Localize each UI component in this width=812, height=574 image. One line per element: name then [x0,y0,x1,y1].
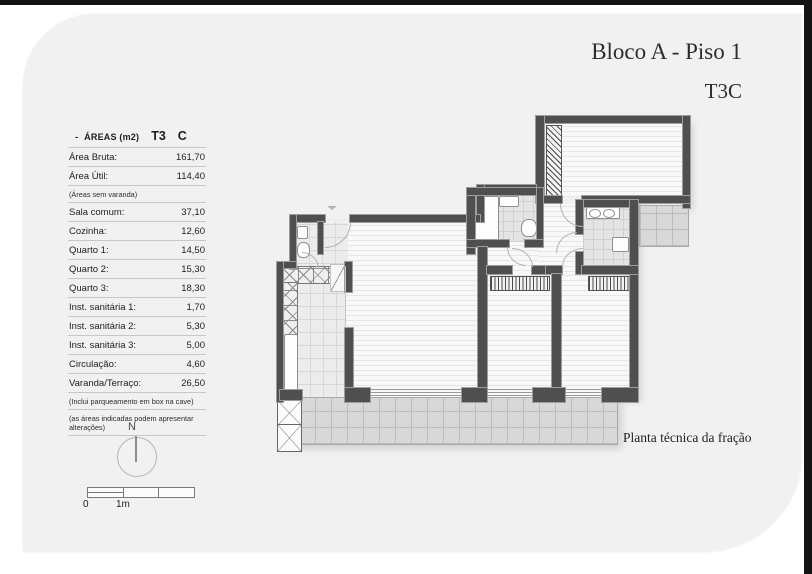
header-type: T3 [151,129,166,143]
scale-divider [158,488,159,497]
row-value: 5,00 [187,340,206,351]
wall-segment [467,188,543,195]
wall-segment [467,240,509,247]
header-fraction: C [178,129,187,143]
table-note: (Áreas sem varanda) [68,186,206,203]
window [370,389,462,397]
plan-title-block: Bloco A - Piso 1 T3C [591,40,742,102]
wall-segment [290,215,296,269]
row-label: Área Útil: [69,171,108,182]
shaft-box [277,424,302,452]
table-row: Inst. sanitária 3: 5,00 [68,336,206,355]
wall-segment [683,116,690,208]
table-row: Quarto 3: 18,30 [68,279,206,298]
block-floor-title: Bloco A - Piso 1 [591,40,742,63]
wall-segment [546,266,562,274]
wall-segment [583,200,630,207]
divider-line [345,266,346,328]
fixture [612,237,629,252]
compass-needle [135,436,137,462]
wall-segment [537,188,543,240]
wall-segment [582,266,638,274]
header-bullet: - [75,132,78,143]
row-label: Quarto 1: [69,245,109,256]
table-row: Inst. sanitária 2: 5,30 [68,317,206,336]
table-row: Circulação: 4,60 [68,355,206,374]
wall-segment [552,274,561,390]
shaft-box [277,400,302,426]
row-label: Circulação: [69,359,117,370]
row-value: 18,30 [181,283,205,294]
wall-segment [318,222,323,254]
row-value: 1,70 [187,302,206,313]
wall-segment [350,215,480,222]
wall-segment [536,116,690,123]
scale-divider [123,488,124,497]
fixture [499,196,519,207]
table-row: Inst. sanitária 1: 1,70 [68,298,206,317]
row-value: 4,60 [187,359,206,370]
row-label: Cozinha: [69,226,107,237]
table-footnote: (as áreas indicadas podem apresentar alt… [68,410,206,436]
wardrobe-hatch [546,125,562,197]
row-label: Quarto 2: [69,264,109,275]
scale-bar [87,487,195,498]
page-frame-top [0,0,812,5]
row-label: Varanda/Terraço: [69,378,141,389]
table-row: Área Bruta: 161,70 [68,148,206,167]
scale-subdivision [88,492,123,493]
fixture [284,334,298,394]
window [565,389,602,397]
table-row: Cozinha: 12,60 [68,222,206,241]
wall-segment [345,388,370,402]
wall-segment [602,388,638,402]
row-value: 161,70 [176,152,205,163]
wall-segment [533,388,565,402]
header-title: ÁREAS (m2) [84,132,139,142]
scale-one-meter-label: 1m [116,499,130,510]
row-value: 114,40 [177,171,205,182]
counter-units [283,282,298,336]
table-row: Área Útil: 114,40 [68,167,206,186]
wood-floor [546,123,683,197]
row-label: Inst. sanitária 1: [69,302,136,313]
scale-zero-label: 0 [83,499,89,510]
row-label: Inst. sanitária 2: [69,321,136,332]
table-row: Quarto 1: 14,50 [68,241,206,260]
table-row: Varanda/Terraço: 26,50 [68,374,206,393]
areas-table-header: - ÁREAS (m2) T3 C [68,126,206,148]
row-label: Área Bruta: [69,152,117,163]
wall-segment [487,266,512,274]
wall-segment [478,247,487,390]
wall-segment [462,388,487,402]
row-value: 5,30 [187,321,206,332]
wall-segment [525,240,543,247]
unit-type-title: T3C [591,81,742,102]
row-value: 12,60 [181,226,205,237]
terrace-floor [640,206,688,246]
wall-segment [345,262,352,292]
wall-segment [630,200,638,400]
row-label: Inst. sanitária 3: [69,340,136,351]
compass-icon [117,437,157,477]
sink-oval [603,209,615,218]
terrace-floor [283,398,617,444]
row-value: 37,10 [181,207,205,218]
compass-north-label: N [128,421,136,433]
row-value: 26,50 [181,378,205,389]
page-frame-right [804,0,812,574]
closet-door-line [330,264,346,292]
wardrobe-hatch [588,276,630,291]
row-label: Quarto 3: [69,283,109,294]
table-row: Quarto 2: 15,30 [68,260,206,279]
wall-segment [277,262,283,402]
wall-segment [345,328,353,390]
window [487,389,533,397]
areas-table: - ÁREAS (m2) T3 C Área Bruta: 161,70 Áre… [68,126,206,436]
toilet-fixture [521,219,537,237]
row-value: 15,30 [181,264,205,275]
row-value: 14,50 [181,245,205,256]
floor-plan: T3 [272,112,692,452]
table-footnote: (Inclui parqueamento em box na cave) [68,393,206,410]
wall-segment [280,390,302,400]
fixture [297,226,308,239]
table-row: Sala comum: 37,10 [68,203,206,222]
row-label: Sala comum: [69,207,124,218]
wardrobe-hatch [490,276,550,291]
sink-oval [589,209,601,218]
